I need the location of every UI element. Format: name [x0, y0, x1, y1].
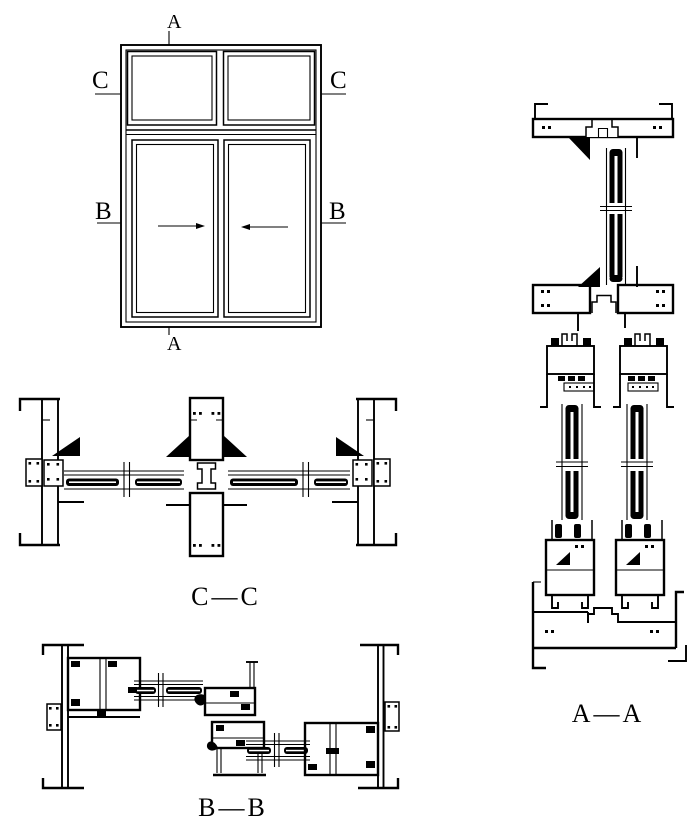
glass-pane-right	[621, 404, 653, 520]
sash-bottom-rail-right	[616, 520, 664, 608]
sash-top-rail-left	[540, 334, 601, 407]
section-marker-b-right: B	[329, 199, 346, 224]
section-label-b-b: B—B	[193, 795, 273, 821]
section-marker-a-bottom: A	[167, 334, 181, 354]
section-c-c-drawing	[20, 398, 396, 556]
section-label-c-c: C—C	[186, 584, 266, 610]
window-elevation-drawing	[95, 31, 346, 335]
section-marker-b-left: B	[95, 199, 112, 224]
section-marker-c-right: C	[330, 68, 347, 93]
section-marker-c-left: C	[92, 68, 109, 93]
slide-arrow-right-icon	[158, 223, 205, 229]
slide-arrow-left-icon	[241, 224, 288, 230]
glass-pane-left	[556, 404, 588, 520]
sash-bottom-rail-left	[546, 520, 594, 608]
section-marker-a-top: A	[167, 12, 181, 32]
sash-top-rail-right	[613, 334, 674, 407]
section-a-a-drawing	[533, 104, 686, 668]
section-b-b-drawing	[43, 645, 399, 788]
section-label-a-a: A—A	[568, 701, 648, 727]
drawing-canvas: A A C C B B C—C B—B A—A	[0, 0, 700, 835]
